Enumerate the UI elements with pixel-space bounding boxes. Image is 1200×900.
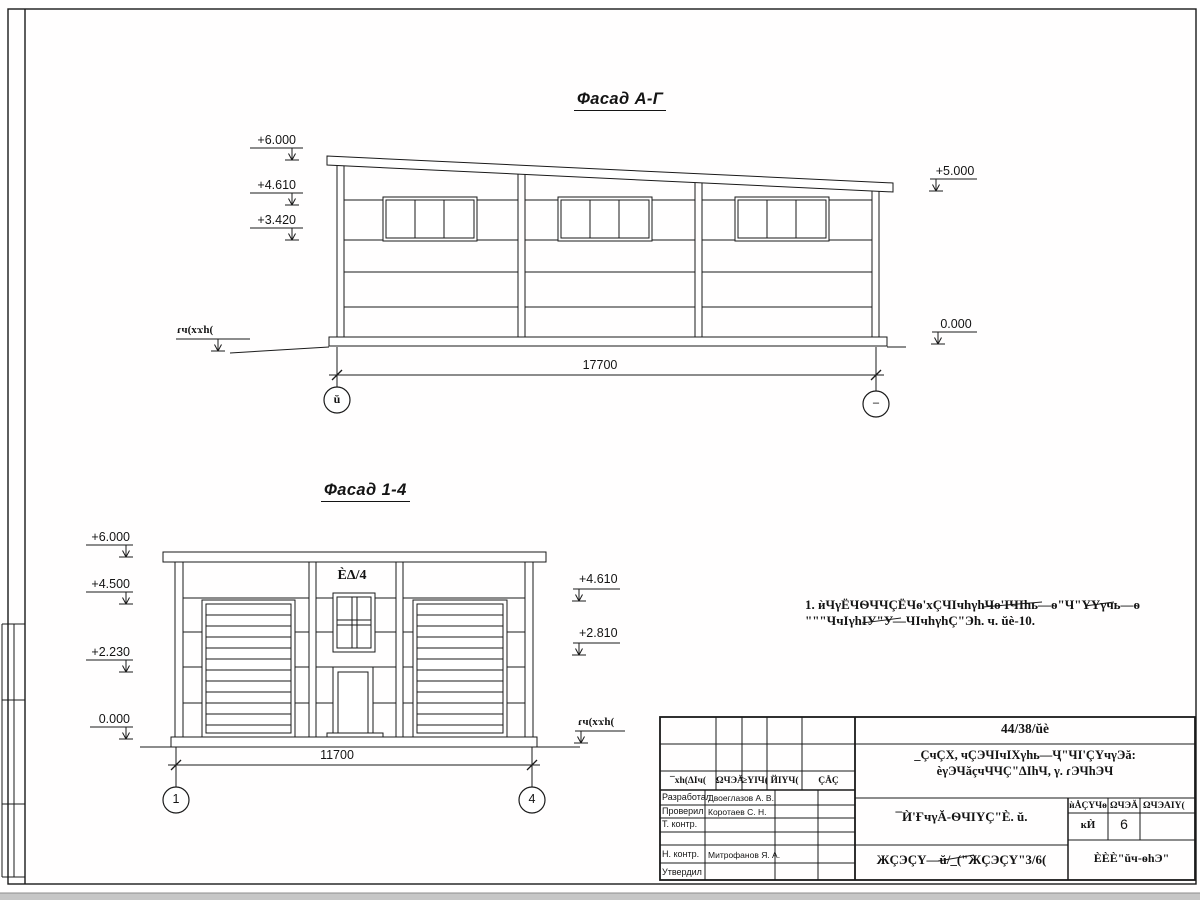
- project-name-line: èγЭЧăçчЧЧÇ"ΔІhЧ, γ. ɾЭЧhЭЧ: [860, 765, 1190, 779]
- left-margin-stamp: [2, 624, 25, 877]
- sheet-number: 6: [1108, 817, 1140, 832]
- elevation-mark-label: +3.420: [224, 214, 296, 228]
- facade-ag-title: Фасад А-Г: [574, 90, 666, 111]
- doc-number: 44/38/ŭè: [875, 722, 1175, 737]
- stamp-col-header: ¯хh(ΔІч(: [660, 776, 716, 786]
- door-type-label: ÈΔ/4: [329, 568, 375, 583]
- company-name: ÈÈÈ"ŭч-ѳhЭ": [1070, 852, 1193, 865]
- axis-bubble-label: –: [863, 396, 889, 409]
- axis-bubble-label: 4: [519, 793, 545, 807]
- stamp-role: Т. контр.: [662, 820, 697, 830]
- stamp-col-header: ÇÅÇ: [802, 776, 855, 786]
- ground-level-label: ɾч(хϫh(: [177, 324, 213, 336]
- stamp-role: Разработал: [662, 793, 711, 803]
- axis-bubble-label: ŭ: [324, 393, 350, 406]
- stamp-role: Н. контр.: [662, 850, 699, 860]
- stamp-col-header: ЙІҮЧ(: [767, 776, 802, 786]
- elevation-mark-label: 0.000: [58, 713, 130, 727]
- ground-level-label: ɾч(хϫh(: [578, 716, 614, 728]
- axis-bubble-label: 1: [163, 793, 189, 807]
- stamp-role: Утвердил: [662, 868, 702, 878]
- stage-col-header: ΩЧЭĂІҮ(: [1143, 801, 1195, 811]
- sheet-title: ¯Ѝ'ҒчγĂ-ѲЧІҮÇ"È. ŭ.: [857, 810, 1066, 824]
- facade-14-title: Фасад 1-4: [321, 481, 410, 502]
- elevation-mark-label: 0.000: [934, 318, 978, 332]
- stamp-name: Митрофанов Я. А.: [708, 851, 780, 860]
- elevation-mark-label: +4.610: [224, 179, 296, 193]
- stage-value: ĸЍ: [1068, 819, 1108, 831]
- stamp-col-header: ≥ҮІЧ(: [742, 776, 767, 786]
- elevation-mark-label: +6.000: [58, 531, 130, 545]
- note-line: 1. ѝЧγЁЧѲЧЧÇЁЧѳ'хÇЧІчhγhЧѳ'ІЧІhь—ѳ"Ч"ҮҮγ…: [805, 598, 1140, 612]
- window-ag-3: [735, 197, 829, 241]
- stamp-name: Коротаев С. Н.: [708, 808, 766, 817]
- window-ag-2: [558, 197, 652, 241]
- project-name-line: _ÇчÇХ, чÇЭЧІчІХγhь—Ҷ"ЧІ'ÇҮчγЭă:: [860, 749, 1190, 763]
- note-line: """ЧчІγhІУ"У—ЧІчhγhÇ"Эh. ч. ŭè-10.: [805, 614, 1035, 628]
- stamp-role: Проверил: [662, 807, 703, 817]
- elevation-mark-label: +6.000: [224, 134, 296, 148]
- drawing-sheet: Фасад А-Г +6.000 +4.610 +3.420 +5.000 0.…: [0, 0, 1200, 900]
- elevation-mark-label: +2.810: [579, 627, 618, 641]
- entry-door-14: [327, 667, 383, 737]
- dimension-text: 17700: [550, 359, 650, 373]
- stamp-name: Двоеглазов А. В.: [708, 794, 774, 803]
- scan-edge: [0, 893, 1200, 900]
- elevation-mark-label: +2.230: [58, 646, 130, 660]
- dimension-text: 11700: [287, 749, 387, 763]
- roller-door-right: [413, 600, 507, 737]
- elevation-mark-label: +5.000: [932, 165, 978, 179]
- window-14: [333, 593, 375, 652]
- window-ag-1: [383, 197, 477, 241]
- facade-ag-linework: [230, 156, 906, 353]
- stage-col-header: ΩЧЭĂ: [1108, 801, 1140, 811]
- stamp-col-header: ΩЧЭĂ: [716, 776, 742, 786]
- roller-door-left: [202, 600, 295, 737]
- stage-col-header: ѝÅÇҮЧѳ: [1068, 801, 1108, 811]
- sheet-code: ЖÇЭÇҮ—ŭ/_("ЖÇЭÇҮ"3/6(: [857, 853, 1066, 867]
- elevation-mark-label: +4.500: [58, 578, 130, 592]
- elevation-mark-label: +4.610: [579, 573, 618, 587]
